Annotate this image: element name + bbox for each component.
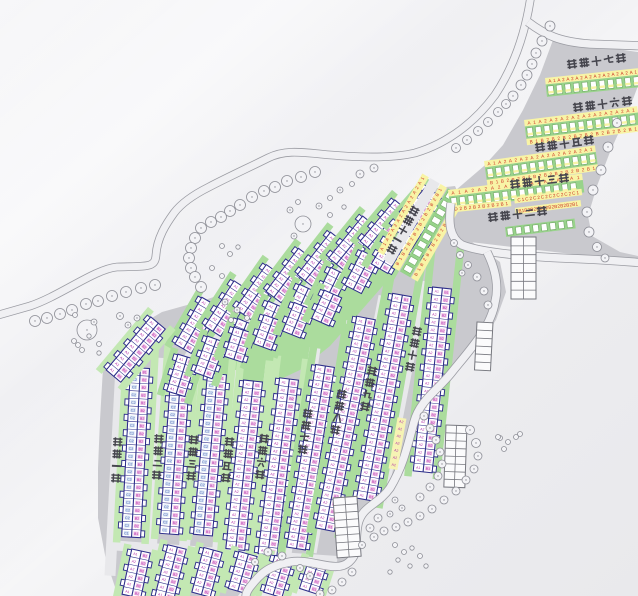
- svg-text:C2: C2: [131, 393, 136, 397]
- svg-text:B2: B2: [279, 481, 284, 485]
- svg-text:B2: B2: [305, 505, 310, 510]
- svg-text:A2: A2: [268, 487, 273, 491]
- svg-text:A2: A2: [297, 496, 302, 501]
- svg-text:B2: B2: [377, 449, 382, 454]
- svg-text:C2: C2: [167, 467, 172, 471]
- svg-text:B2: B2: [351, 404, 356, 409]
- svg-text:B2: B2: [174, 498, 179, 502]
- svg-text:A2: A2: [389, 326, 394, 331]
- svg-text:C1: C1: [196, 529, 201, 533]
- svg-text:B2: B2: [373, 472, 378, 477]
- svg-text:A2: A2: [393, 304, 398, 309]
- svg-text:B2: B2: [440, 329, 445, 333]
- svg-text:A2: A2: [241, 421, 246, 425]
- svg-text:A2: A2: [379, 379, 384, 384]
- svg-text:A2: A2: [396, 434, 401, 439]
- svg-text:B2: B2: [274, 519, 279, 523]
- svg-text:C2: C2: [206, 414, 211, 418]
- svg-text:A2: A2: [320, 515, 325, 520]
- svg-text:A2: A2: [349, 364, 354, 369]
- svg-text:B2: B2: [378, 442, 383, 447]
- svg-text:B2: B2: [136, 493, 141, 497]
- svg-text:B2: B2: [142, 386, 147, 390]
- svg-text:B2: B2: [306, 498, 311, 503]
- svg-text:A2: A2: [239, 444, 244, 448]
- svg-text:A2: A2: [272, 457, 277, 461]
- svg-text:A2: A2: [329, 470, 334, 475]
- svg-text:B2: B2: [135, 509, 140, 513]
- svg-text:C2: C2: [201, 475, 206, 479]
- svg-text:B1: B1: [172, 529, 177, 533]
- svg-text:B2: B2: [321, 407, 326, 412]
- svg-text:A2: A2: [398, 427, 403, 432]
- svg-text:C2: C2: [126, 501, 131, 505]
- svg-text:C2: C2: [128, 462, 133, 466]
- svg-text:B2: B2: [134, 524, 139, 528]
- svg-text:C2: C2: [163, 513, 168, 517]
- svg-text:A2: A2: [321, 508, 326, 513]
- svg-text:A2: A2: [332, 455, 337, 460]
- svg-text:B2: B2: [212, 453, 217, 457]
- svg-text:A2: A2: [299, 481, 304, 486]
- svg-text:A2: A2: [385, 349, 390, 354]
- svg-text:B2: B2: [241, 521, 246, 525]
- svg-text:A2: A2: [361, 486, 366, 491]
- svg-text:A1: A1: [317, 367, 322, 372]
- svg-text:B2: B2: [275, 512, 280, 516]
- svg-text:B2: B2: [288, 405, 293, 409]
- svg-text:B1: B1: [291, 382, 296, 386]
- svg-text:A2: A2: [266, 503, 271, 507]
- svg-text:A2: A2: [334, 440, 339, 445]
- svg-text:A2: A2: [302, 466, 307, 471]
- svg-text:C2: C2: [131, 401, 136, 405]
- svg-text:B2: B2: [249, 445, 254, 449]
- svg-text:A2: A2: [419, 435, 424, 439]
- svg-text:B2: B2: [246, 468, 251, 472]
- svg-text:A2: A2: [231, 520, 236, 524]
- svg-text:B2: B2: [271, 542, 276, 546]
- svg-text:B2: B2: [340, 464, 345, 469]
- svg-text:B2: B2: [245, 483, 250, 487]
- svg-text:B2: B2: [390, 373, 395, 378]
- svg-text:A2: A2: [387, 334, 392, 339]
- svg-text:B1: B1: [404, 298, 409, 303]
- svg-text:C2: C2: [164, 497, 169, 501]
- svg-text:B2: B2: [381, 427, 386, 432]
- svg-text:B2: B2: [324, 384, 329, 389]
- svg-text:A1: A1: [245, 382, 250, 386]
- svg-text:A2: A2: [264, 518, 269, 522]
- svg-text:A2: A2: [265, 510, 270, 514]
- svg-text:C2: C2: [127, 470, 132, 474]
- svg-text:B2: B2: [372, 480, 377, 485]
- svg-text:B2: B2: [140, 409, 145, 413]
- svg-text:C2: C2: [127, 485, 132, 489]
- svg-text:B2: B2: [245, 475, 250, 479]
- svg-text:B2: B2: [210, 484, 215, 488]
- svg-text:A1: A1: [289, 542, 294, 547]
- svg-text:C2: C2: [171, 405, 176, 409]
- svg-text:B2: B2: [344, 442, 349, 447]
- svg-text:B1: B1: [238, 544, 243, 548]
- svg-text:B2: B2: [347, 427, 352, 432]
- svg-text:B2: B2: [376, 457, 381, 462]
- svg-text:B2: B2: [338, 472, 343, 477]
- svg-text:B2: B2: [370, 487, 375, 492]
- svg-text:B2: B2: [173, 521, 178, 525]
- svg-text:B2: B2: [402, 305, 407, 310]
- svg-text:B2: B2: [287, 412, 292, 416]
- svg-text:A2: A2: [394, 448, 399, 453]
- svg-text:A2: A2: [278, 411, 283, 415]
- svg-text:B2: B2: [345, 434, 350, 439]
- svg-text:A2: A2: [386, 342, 391, 347]
- svg-text:B2: B2: [175, 490, 180, 494]
- svg-text:B2: B2: [283, 450, 288, 454]
- svg-text:B2: B2: [386, 396, 391, 401]
- svg-text:B2: B2: [309, 483, 314, 488]
- svg-text:A2: A2: [377, 395, 382, 400]
- svg-text:A1: A1: [358, 319, 363, 324]
- svg-text:B2: B2: [439, 337, 444, 341]
- svg-text:B1: B1: [134, 532, 139, 536]
- svg-text:A2: A2: [382, 364, 387, 369]
- svg-text:B2: B2: [307, 490, 312, 495]
- svg-text:C2: C2: [163, 520, 168, 524]
- svg-text:C2: C2: [126, 493, 131, 497]
- svg-text:B1: B1: [444, 290, 449, 294]
- svg-text:A2: A2: [399, 420, 404, 425]
- svg-text:A2: A2: [417, 458, 422, 462]
- svg-text:A2: A2: [381, 372, 386, 377]
- svg-text:A2: A2: [295, 504, 300, 509]
- svg-text:A2: A2: [429, 343, 434, 347]
- svg-text:B2: B2: [337, 480, 342, 485]
- svg-text:A2: A2: [236, 474, 241, 478]
- svg-text:A2: A2: [395, 441, 400, 446]
- svg-text:B2: B2: [140, 417, 145, 421]
- svg-text:B2: B2: [385, 404, 390, 409]
- svg-text:B2: B2: [135, 517, 140, 521]
- svg-text:C1: C1: [124, 531, 129, 535]
- svg-text:A2: A2: [357, 326, 362, 331]
- svg-text:B2: B2: [219, 384, 224, 388]
- svg-text:B2: B2: [217, 400, 222, 404]
- svg-text:A2: A2: [431, 320, 436, 324]
- svg-text:B2: B2: [239, 537, 244, 541]
- svg-text:A2: A2: [426, 374, 431, 378]
- svg-text:A2: A2: [352, 349, 357, 354]
- svg-text:B2: B2: [303, 521, 308, 526]
- svg-text:B2: B2: [175, 483, 180, 487]
- svg-text:B2: B2: [431, 413, 436, 417]
- svg-text:B2: B2: [214, 438, 219, 442]
- svg-text:C2: C2: [201, 468, 206, 472]
- svg-text:B2: B2: [398, 328, 403, 333]
- svg-text:B2: B2: [392, 366, 397, 371]
- svg-text:A2: A2: [430, 336, 435, 340]
- svg-text:B2: B2: [441, 321, 446, 325]
- svg-text:A2: A2: [229, 536, 234, 540]
- svg-text:B2: B2: [215, 423, 220, 427]
- svg-text:B2: B2: [251, 422, 256, 426]
- svg-text:B2: B2: [428, 444, 433, 448]
- svg-text:A2: A2: [375, 402, 380, 407]
- svg-text:B2: B2: [136, 501, 141, 505]
- svg-text:C2: C2: [170, 420, 175, 424]
- svg-text:A2: A2: [233, 497, 238, 501]
- svg-text:B2: B2: [322, 399, 327, 404]
- svg-text:A2: A2: [366, 455, 371, 460]
- svg-text:A2: A2: [232, 513, 237, 517]
- svg-text:A2: A2: [237, 467, 242, 471]
- svg-text:B2: B2: [300, 536, 305, 541]
- svg-text:B2: B2: [273, 527, 278, 531]
- svg-text:A2: A2: [292, 527, 297, 532]
- svg-text:A2: A2: [428, 351, 433, 355]
- svg-text:B2: B2: [253, 399, 258, 403]
- svg-text:A2: A2: [370, 432, 375, 437]
- svg-text:C2: C2: [170, 413, 175, 417]
- svg-text:A2: A2: [303, 458, 308, 463]
- svg-text:A2: A2: [262, 541, 267, 545]
- svg-text:B2: B2: [350, 411, 355, 416]
- svg-text:C2: C2: [208, 391, 213, 395]
- svg-text:B2: B2: [353, 396, 358, 401]
- svg-text:B2: B2: [177, 460, 182, 464]
- svg-text:A2: A2: [365, 463, 370, 468]
- svg-text:B2: B2: [400, 320, 405, 325]
- svg-text:C2: C2: [129, 431, 134, 435]
- svg-text:B2: B2: [252, 414, 257, 418]
- svg-text:B2: B2: [178, 444, 183, 448]
- svg-text:A2: A2: [391, 463, 396, 468]
- svg-text:A2: A2: [275, 434, 280, 438]
- svg-text:B2: B2: [210, 476, 215, 480]
- svg-text:C2: C2: [129, 439, 134, 443]
- svg-text:B2: B2: [354, 389, 359, 394]
- svg-text:A2: A2: [241, 429, 246, 433]
- svg-text:B2: B2: [304, 513, 309, 518]
- svg-text:A2: A2: [274, 442, 279, 446]
- svg-text:A2: A2: [367, 448, 372, 453]
- svg-text:B2: B2: [173, 513, 178, 517]
- svg-text:C2: C2: [199, 498, 204, 502]
- svg-text:B2: B2: [253, 407, 258, 411]
- svg-text:B2: B2: [290, 389, 295, 393]
- svg-text:C2: C2: [204, 437, 209, 441]
- svg-text:B2: B2: [213, 445, 218, 449]
- svg-text:B2: B2: [323, 392, 328, 397]
- svg-text:A2: A2: [326, 485, 331, 490]
- svg-text:B2: B2: [278, 489, 283, 493]
- svg-text:B2: B2: [178, 437, 183, 441]
- svg-text:A2: A2: [348, 372, 353, 377]
- svg-text:B2: B2: [140, 424, 145, 428]
- svg-text:C2: C2: [197, 521, 202, 525]
- svg-text:A2: A2: [426, 366, 431, 370]
- svg-text:B2: B2: [216, 415, 221, 419]
- svg-text:B2: B2: [176, 467, 181, 471]
- svg-text:A2: A2: [238, 451, 243, 455]
- svg-text:A2: A2: [351, 357, 356, 362]
- svg-text:B2: B2: [247, 460, 252, 464]
- svg-text:B2: B2: [388, 389, 393, 394]
- svg-text:B2: B2: [393, 358, 398, 363]
- svg-text:B2: B2: [318, 422, 323, 427]
- svg-text:A2: A2: [273, 449, 278, 453]
- svg-text:B2: B2: [320, 414, 325, 419]
- svg-text:C2: C2: [130, 424, 135, 428]
- svg-text:B2: B2: [384, 411, 389, 416]
- svg-text:B2: B2: [394, 351, 399, 356]
- svg-text:A2: A2: [277, 419, 282, 423]
- svg-text:B2: B2: [426, 459, 431, 463]
- svg-text:A2: A2: [311, 405, 316, 410]
- svg-text:A2: A2: [391, 311, 396, 316]
- svg-text:B2: B2: [442, 306, 447, 310]
- svg-text:A2: A2: [355, 334, 360, 339]
- svg-text:A2: A2: [267, 495, 272, 499]
- svg-text:C2: C2: [168, 444, 173, 448]
- svg-text:C2: C2: [165, 482, 170, 486]
- svg-text:A1: A1: [318, 523, 323, 528]
- svg-text:A2: A2: [327, 478, 332, 483]
- svg-text:C2: C2: [125, 508, 130, 512]
- svg-text:B2: B2: [432, 405, 437, 409]
- svg-text:A2: A2: [371, 425, 376, 430]
- svg-text:B2: B2: [427, 451, 432, 455]
- svg-text:B2: B2: [141, 401, 146, 405]
- svg-text:B2: B2: [401, 313, 406, 318]
- svg-text:C1: C1: [162, 528, 167, 532]
- svg-text:B2: B2: [277, 496, 282, 500]
- svg-text:A2: A2: [333, 447, 338, 452]
- svg-text:A2: A2: [264, 526, 269, 530]
- svg-text:B2: B2: [242, 506, 247, 510]
- svg-text:A2: A2: [373, 417, 378, 422]
- svg-text:A1: A1: [359, 493, 364, 498]
- svg-text:A2: A2: [418, 443, 423, 447]
- svg-text:B2: B2: [316, 437, 321, 442]
- svg-text:C2: C2: [169, 436, 174, 440]
- svg-text:B2: B2: [442, 314, 447, 318]
- svg-text:C2: C2: [132, 385, 137, 389]
- svg-text:C2: C2: [207, 406, 212, 410]
- svg-text:B2: B2: [281, 466, 286, 470]
- svg-text:B1: B1: [327, 369, 332, 374]
- svg-text:C2: C2: [125, 516, 130, 520]
- svg-text:B2: B2: [335, 487, 340, 492]
- svg-text:A2: A2: [330, 463, 335, 468]
- svg-text:C2: C2: [165, 490, 170, 494]
- svg-text:B2: B2: [329, 517, 334, 522]
- svg-text:B2: B2: [317, 430, 322, 435]
- svg-text:A2: A2: [243, 406, 248, 410]
- svg-text:B2: B2: [348, 419, 353, 424]
- svg-text:B1: B1: [206, 530, 211, 534]
- svg-text:B2: B2: [211, 469, 216, 473]
- svg-text:A2: A2: [323, 500, 328, 505]
- svg-text:A1: A1: [416, 466, 421, 470]
- svg-text:A2: A2: [345, 387, 350, 392]
- svg-text:A2: A2: [244, 398, 249, 402]
- svg-text:A2: A2: [432, 313, 437, 317]
- svg-text:B2: B2: [174, 506, 179, 510]
- svg-text:B2: B2: [272, 534, 277, 538]
- svg-text:A2: A2: [430, 328, 435, 332]
- svg-text:B2: B2: [283, 443, 288, 447]
- svg-text:C2: C2: [171, 397, 176, 401]
- svg-text:B2: B2: [254, 391, 259, 395]
- svg-text:A2: A2: [346, 379, 351, 384]
- svg-text:B2: B2: [250, 430, 255, 434]
- svg-text:B2: B2: [176, 475, 181, 479]
- svg-text:A2: A2: [230, 528, 235, 532]
- svg-text:A2: A2: [418, 450, 423, 454]
- svg-text:B2: B2: [289, 397, 294, 401]
- svg-text:B2: B2: [396, 343, 401, 348]
- svg-text:A2: A2: [393, 456, 398, 461]
- svg-text:C2: C2: [167, 459, 172, 463]
- svg-text:A2: A2: [233, 505, 238, 509]
- svg-text:A2: A2: [378, 387, 383, 392]
- svg-text:A2: A2: [324, 493, 329, 498]
- svg-text:C2: C2: [130, 416, 135, 420]
- svg-text:B2: B2: [208, 507, 213, 511]
- svg-text:C2: C2: [125, 524, 130, 528]
- svg-text:B2: B2: [276, 504, 281, 508]
- svg-text:A2: A2: [242, 413, 247, 417]
- svg-text:B2: B2: [206, 522, 211, 526]
- svg-text:B1: B1: [328, 525, 333, 530]
- svg-text:B2: B2: [366, 328, 371, 333]
- svg-text:B1: B1: [134, 591, 139, 596]
- svg-text:B2: B2: [374, 465, 379, 470]
- svg-text:B2: B2: [139, 440, 144, 444]
- svg-text:B1: B1: [299, 544, 304, 549]
- svg-text:B2: B2: [365, 336, 370, 341]
- svg-text:B2: B2: [286, 420, 291, 424]
- svg-text:A1: A1: [158, 592, 163, 596]
- svg-text:A2: A2: [276, 426, 281, 430]
- svg-text:C2: C2: [129, 447, 134, 451]
- svg-text:A2: A2: [421, 420, 426, 424]
- svg-text:B2: B2: [212, 461, 217, 465]
- svg-text:A2: A2: [235, 482, 240, 486]
- svg-text:B2: B2: [180, 414, 185, 418]
- svg-text:B2: B2: [397, 336, 402, 341]
- svg-text:B1: B1: [368, 321, 373, 326]
- svg-text:A2: A2: [237, 459, 242, 463]
- svg-text:B2: B2: [359, 366, 364, 371]
- svg-text:B2: B2: [138, 447, 143, 451]
- svg-text:C2: C2: [169, 428, 174, 432]
- svg-text:B2: B2: [243, 498, 248, 502]
- svg-text:A2: A2: [434, 297, 439, 301]
- svg-text:B2: B2: [315, 445, 320, 450]
- svg-text:B2: B2: [311, 468, 316, 473]
- svg-text:C2: C2: [168, 451, 173, 455]
- svg-text:A2: A2: [390, 319, 395, 324]
- svg-text:B2: B2: [181, 406, 186, 410]
- svg-text:B2: B2: [217, 407, 222, 411]
- svg-text:B2: B2: [380, 434, 385, 439]
- svg-text:B2: B2: [138, 455, 143, 459]
- svg-text:A2: A2: [314, 390, 319, 395]
- svg-text:B2: B2: [382, 419, 387, 424]
